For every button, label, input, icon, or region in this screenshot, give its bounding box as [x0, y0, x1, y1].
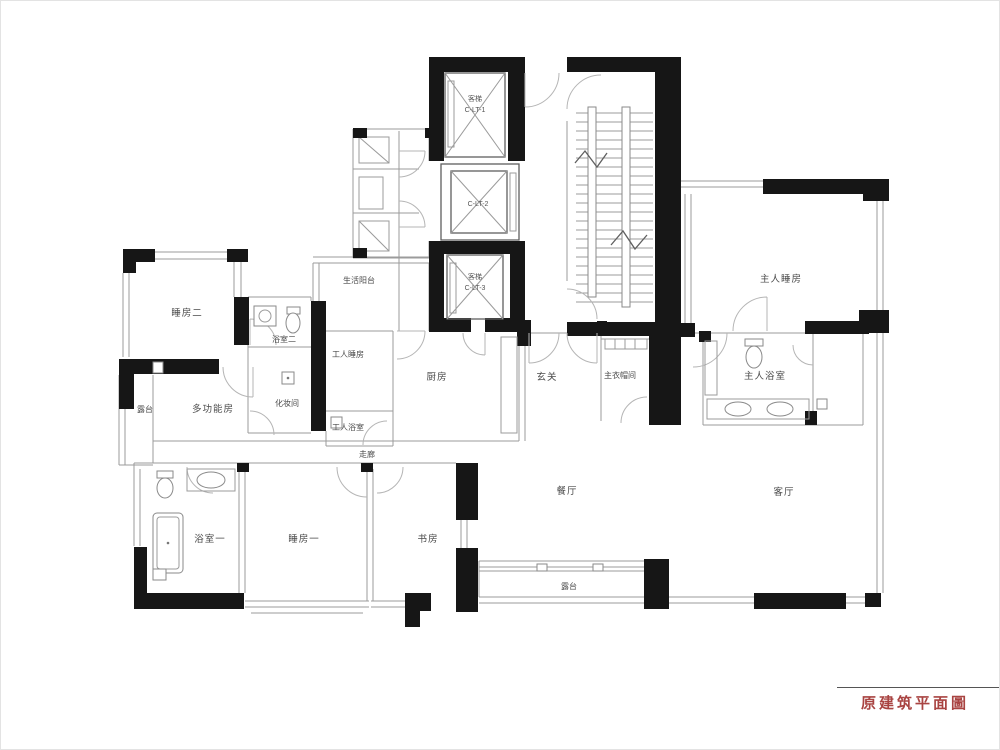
elevator-1-type: 客梯 — [468, 94, 482, 103]
elevator-2: C-LT-2 — [441, 164, 519, 240]
elevator-1: 客梯 C-LT-1 — [445, 73, 505, 157]
room-label-service-balcony: 生活阳台 — [343, 275, 375, 285]
room-label-balcony-south: 露台 — [561, 581, 577, 591]
sink-icon — [197, 472, 225, 488]
toilet-icon — [745, 339, 763, 346]
room-label-multifunction-room: 多功能房 — [192, 403, 234, 415]
room-label-staff-bathroom: 工人浴室 — [332, 422, 364, 432]
elevator-3-type: 客梯 — [468, 272, 482, 281]
walls — [119, 57, 889, 627]
room-label-staff-bedroom: 工人睡房 — [332, 349, 364, 359]
room-label-balcony-west: 露台 — [137, 404, 153, 414]
room-label-study: 书房 — [417, 533, 438, 545]
room-label-dining-room: 餐厅 — [556, 485, 577, 497]
sink-icon — [725, 402, 751, 416]
room-label-bathroom-1: 浴室一 — [194, 533, 226, 545]
elevator-3: 客梯 C-LT-3 — [447, 255, 503, 319]
vanity-counter — [707, 399, 809, 419]
elevator-2-code: C-LT-2 — [468, 201, 489, 208]
sink-icon — [254, 306, 276, 326]
room-label-master-bathroom: 主人浴室 — [744, 370, 786, 382]
room-label-master-bedroom: 主人睡房 — [760, 273, 802, 285]
toilet-icon — [157, 471, 173, 478]
room-label-living-room: 客厅 — [773, 486, 794, 498]
floor-plan-drawing: 客梯 C-LT-1 C-LT-2 客梯 C-LT-3 — [1, 1, 1000, 750]
wardrobe-icon — [605, 339, 647, 349]
elevator-3-code: C-LT-3 — [465, 285, 486, 292]
room-label-kitchen: 厨房 — [426, 371, 447, 383]
kitchen-counter — [501, 337, 517, 433]
staircase — [575, 107, 653, 307]
room-label-dressing-room: 化妆间 — [275, 398, 299, 408]
fixture-icon — [817, 399, 827, 409]
room-label-bathroom-2: 浴室二 — [272, 334, 296, 344]
drawing-title: 原建筑平面圖 — [861, 695, 969, 712]
sink-icon — [767, 402, 793, 416]
elevator-1-code: C-LT-1 — [465, 107, 486, 114]
room-label-bedroom-2: 睡房二 — [171, 307, 203, 319]
room-label-corridor: 走廊 — [359, 449, 375, 459]
bathtub-icon — [705, 341, 717, 395]
room-label-master-closet: 主衣帽间 — [604, 370, 636, 380]
title-block: 原建筑平面圖 — [837, 687, 1000, 713]
room-label-bedroom-1: 睡房一 — [288, 533, 320, 545]
floor-plan-page: 客梯 C-LT-1 C-LT-2 客梯 C-LT-3 — [0, 0, 1000, 750]
room-label-foyer: 玄关 — [536, 371, 557, 383]
bidet-icon — [153, 569, 166, 580]
